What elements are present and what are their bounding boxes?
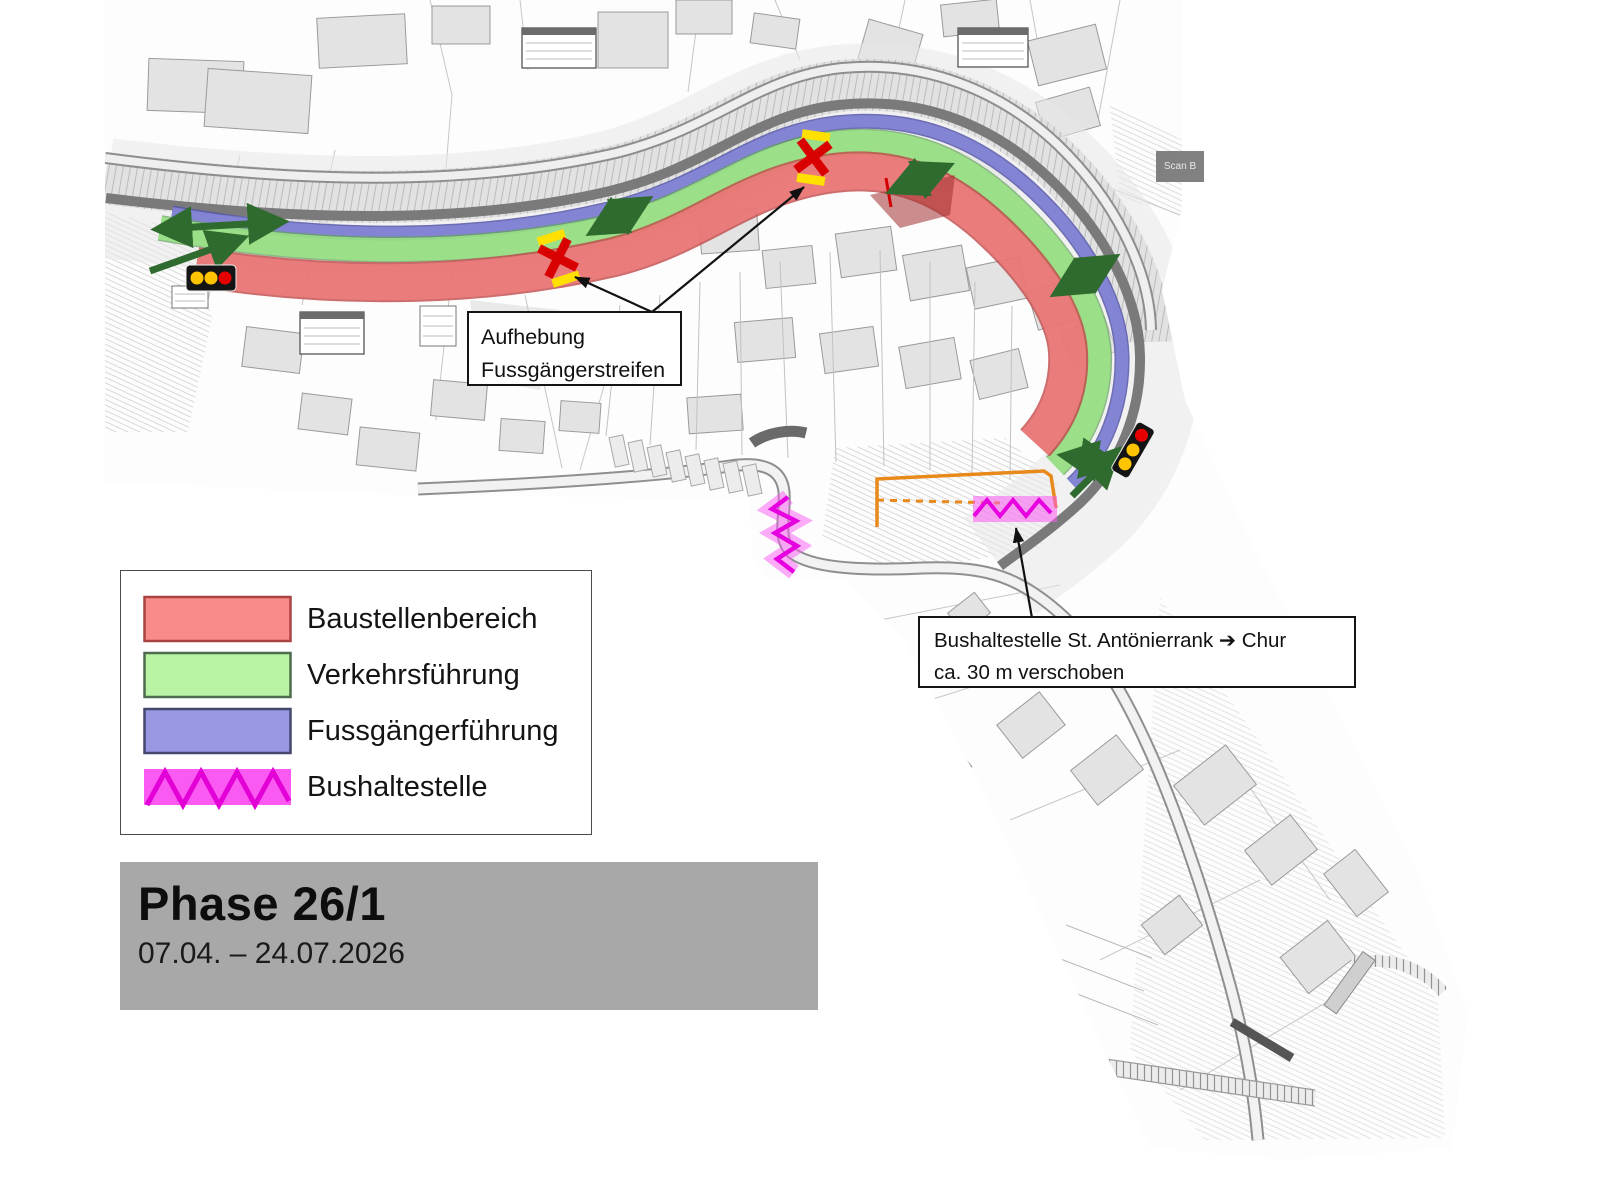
phase-title: Phase 26/1 (138, 876, 818, 931)
construction-phase-plan: { "legend": { "items": [ {"label": "Baus… (0, 0, 1600, 1200)
callout-bus-stop-shift: Bushaltestelle St. Antönierrank ➔ Chur c… (918, 616, 1356, 688)
traffic-light-icon (186, 265, 236, 291)
legend-item-pedestrian-routing: Fussgängerführung (143, 707, 571, 755)
legend-swatch-construction (143, 595, 293, 643)
legend-item-construction: Baustellenbereich (143, 595, 571, 643)
legend-item-bus-stop: Bushaltestelle (143, 763, 571, 811)
callout-crossing-removal: Aufhebung Fussgängerstreifen (467, 311, 682, 386)
legend-swatch-traffic-routing (143, 651, 293, 699)
bus-stop-zigzag (973, 496, 1057, 522)
callout-line: Bushaltestelle St. Antönierrank ➔ Chur (934, 625, 1340, 657)
phase-date-range: 07.04. – 24.07.2026 (138, 937, 818, 971)
legend-label: Verkehrsführung (307, 659, 520, 692)
legend-label: Bushaltestelle (307, 771, 488, 804)
callout-line: Fussgängerstreifen (481, 354, 668, 387)
legend-swatch-bus-stop (143, 763, 293, 811)
phase-info-box: Phase 26/1 07.04. – 24.07.2026 (120, 862, 818, 1010)
scan-badge: Scan B (1156, 151, 1204, 182)
callout-line: Aufhebung (481, 321, 668, 354)
callout-line: ca. 30 m verschoben (934, 657, 1340, 689)
legend-swatch-pedestrian-routing (143, 707, 293, 755)
legend-item-traffic-routing: Verkehrsführung (143, 651, 571, 699)
legend-label: Baustellenbereich (307, 603, 538, 636)
legend-label: Fussgängerführung (307, 715, 559, 748)
legend: Baustellenbereich Verkehrsführung Fussgä… (120, 570, 592, 835)
